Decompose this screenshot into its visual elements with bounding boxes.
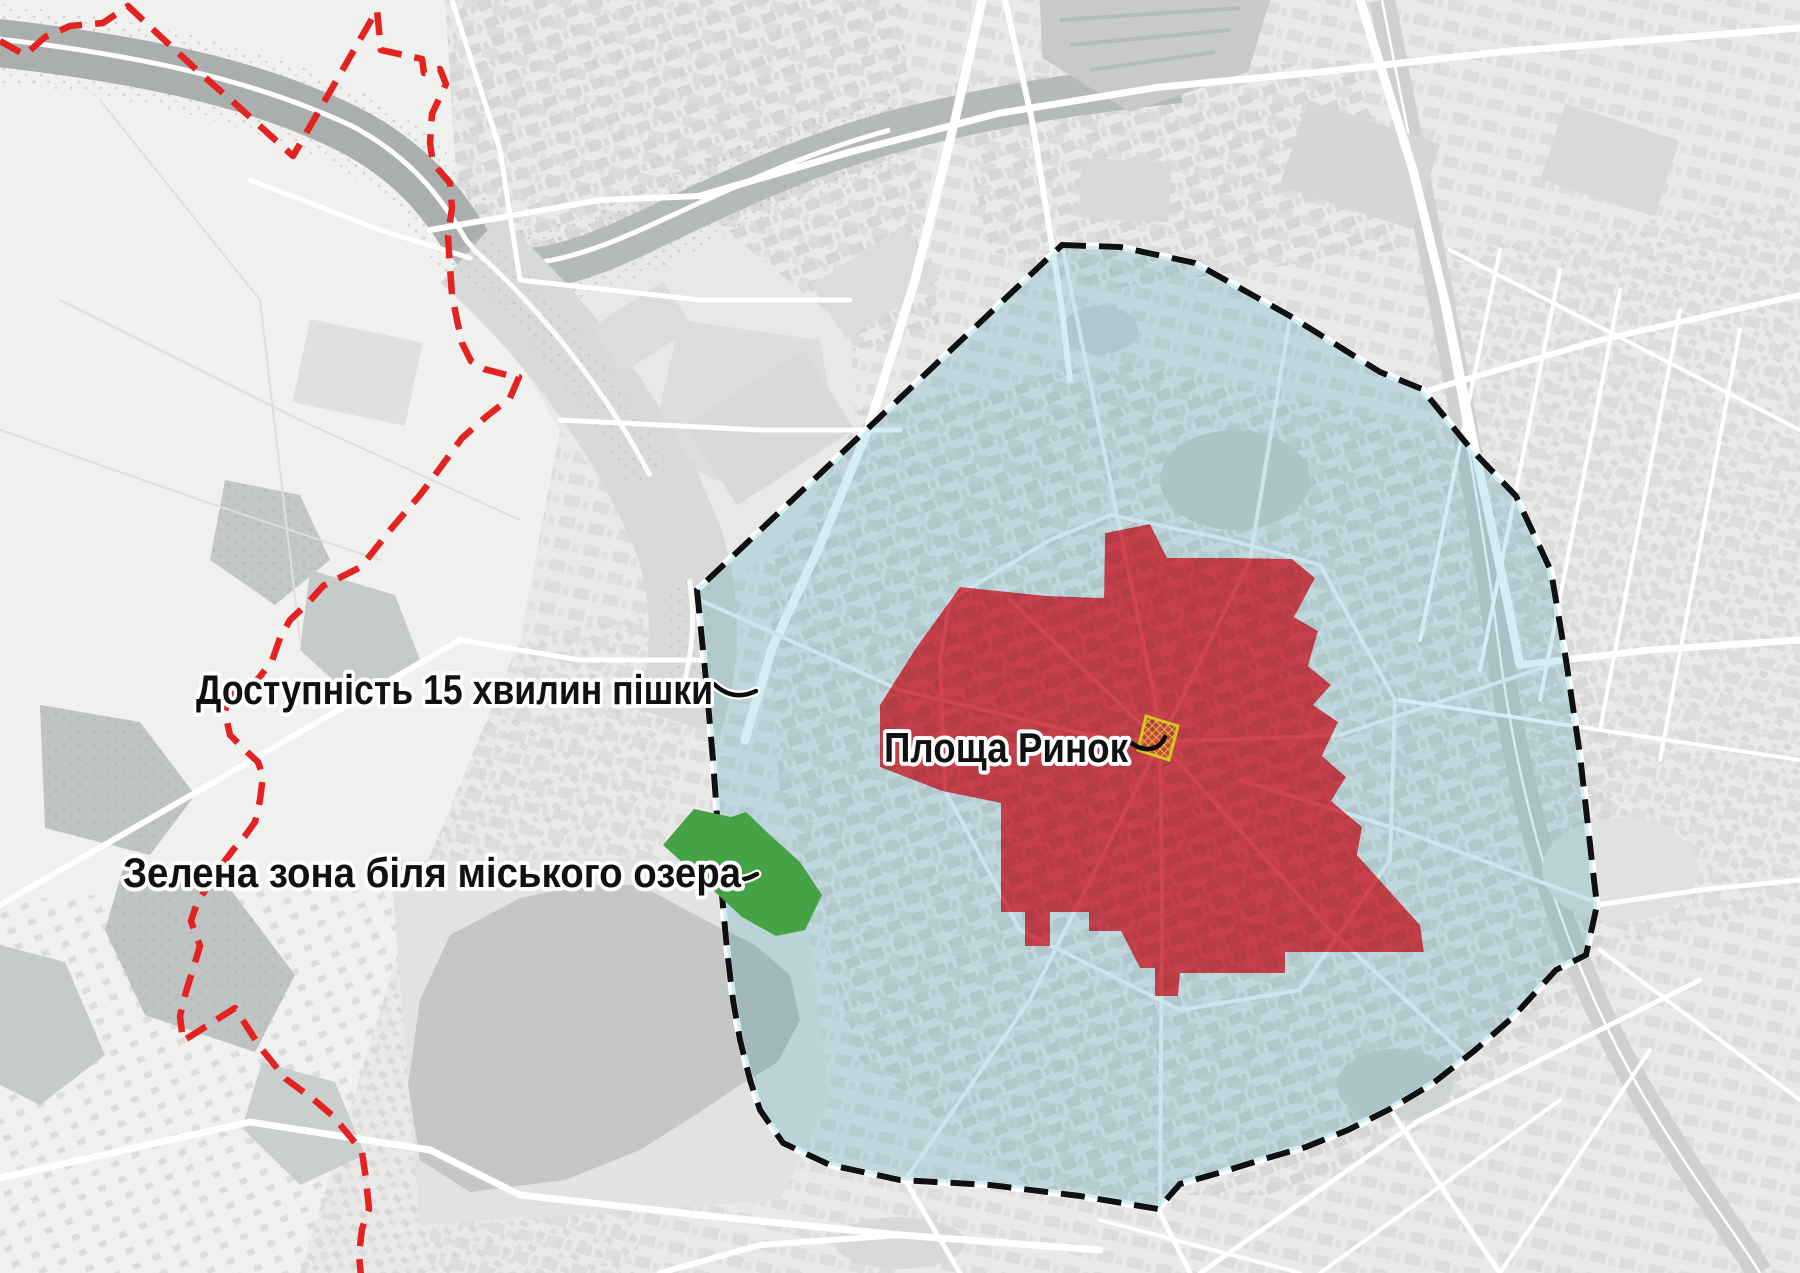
svg-text:Доступність 15 хвилин пішки: Доступність 15 хвилин пішки [196,666,713,713]
svg-text:Площа Ринок: Площа Ринок [884,724,1129,771]
svg-text:Зелена зона біля міського озер: Зелена зона біля міського озера [123,849,742,896]
